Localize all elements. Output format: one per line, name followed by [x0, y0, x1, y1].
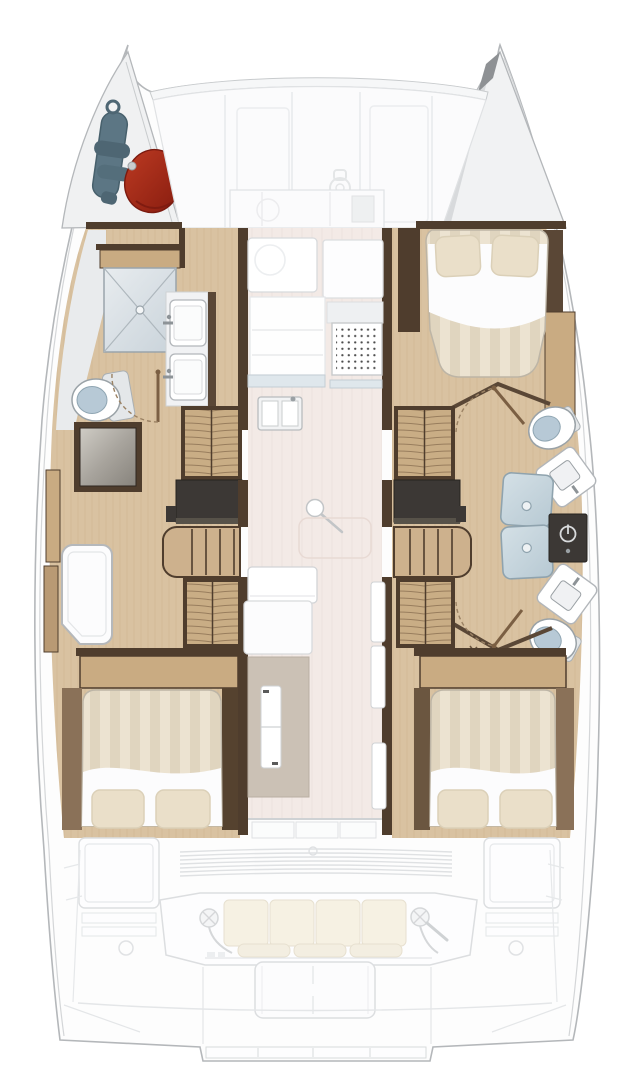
sofa-backrest — [248, 567, 317, 603]
bed-side-wall — [222, 688, 238, 830]
double-bed-starboard-aft — [430, 690, 556, 828]
faucet-icon — [291, 397, 296, 402]
double-bed-port-aft — [82, 690, 222, 828]
galley-shelf — [327, 302, 383, 323]
bench-seat-port — [62, 545, 112, 644]
companion-stairs-port — [163, 527, 240, 577]
back-cushion — [270, 900, 314, 946]
galley-panel — [250, 297, 325, 375]
sliding-door-panel — [296, 822, 338, 838]
aft-cabin-bulkhead — [414, 648, 566, 656]
vanity-side-wall — [208, 292, 216, 406]
fwd-cabin-side-wall — [398, 228, 420, 332]
seat-cushion — [350, 944, 402, 957]
back-cushion — [362, 900, 406, 946]
bed-headboard — [420, 656, 566, 688]
companionway-step — [372, 743, 386, 809]
starboard-fwd-bulkhead — [416, 221, 566, 229]
hanging-locker-port-2 — [183, 578, 242, 648]
sliding-door-panel — [252, 822, 294, 838]
counter-edge — [330, 380, 382, 388]
hanging-locker-port-1 — [181, 406, 242, 480]
shower-glass-door — [501, 525, 554, 580]
port-aft-cabin — [62, 648, 242, 830]
aft-bench — [160, 893, 477, 965]
door-hinge — [156, 370, 161, 375]
pillow — [438, 790, 488, 828]
glass-door-knob — [522, 501, 532, 511]
port-outboard-trim — [44, 566, 58, 652]
companionway-step — [371, 646, 385, 708]
starboard-aft-cabin — [414, 648, 574, 830]
chart-table — [248, 657, 309, 797]
companionway-step — [371, 582, 385, 642]
saloon-front-cabinet-row — [230, 190, 384, 228]
port-heads-front-wall — [86, 222, 182, 229]
counter-port — [166, 480, 242, 524]
pillow — [500, 790, 552, 828]
counter-edge — [248, 375, 325, 387]
back-cushion — [224, 900, 268, 946]
sofa-seat — [244, 601, 312, 654]
glass-door-knob — [522, 543, 531, 552]
pillow — [156, 790, 210, 828]
galley-double-sink — [258, 397, 302, 431]
aft-cabin-bulkhead — [76, 648, 242, 656]
deck-plan-canvas: Sailing catamaran interior deck plan, ov… — [0, 0, 629, 1080]
shower-control-panel — [549, 514, 587, 562]
door-hinge — [492, 644, 497, 649]
catamaran-deck-plan — [0, 0, 629, 1080]
shower-glass-door — [500, 472, 554, 527]
bed-side-wall — [62, 688, 82, 830]
double-bed-starboard-forward — [426, 230, 548, 377]
door-hinge — [492, 386, 497, 391]
galley-cabinet — [248, 238, 317, 292]
hob-grill — [332, 323, 382, 375]
port-outboard-trim — [46, 470, 60, 562]
pillow — [491, 235, 539, 277]
pillow — [92, 790, 144, 828]
bed-headboard — [80, 656, 238, 688]
starboard-hull — [388, 221, 599, 842]
companion-stairs-starboard — [394, 527, 471, 577]
shower-drain — [136, 306, 144, 314]
saloon-sofa — [244, 567, 317, 654]
saloon — [238, 228, 392, 838]
hanging-locker-starboard-1 — [394, 406, 455, 480]
vanity-port — [163, 292, 216, 406]
bed-side-wall — [556, 688, 574, 830]
saloon-aft-door — [248, 819, 382, 838]
port-hull — [40, 222, 245, 842]
bed-side-wall — [414, 688, 430, 830]
sliding-door-panel — [340, 822, 376, 838]
washbasin — [163, 300, 206, 346]
seat-cushion — [294, 944, 346, 957]
galley-cabinet — [323, 240, 383, 298]
seat-cushion — [238, 944, 290, 957]
back-cushion — [316, 900, 360, 946]
washbasin — [163, 354, 206, 400]
counter-starboard — [394, 480, 466, 524]
shower-tray-unit-port — [74, 422, 142, 492]
pillow — [435, 235, 481, 277]
hanging-locker-starboard-2 — [396, 578, 455, 648]
